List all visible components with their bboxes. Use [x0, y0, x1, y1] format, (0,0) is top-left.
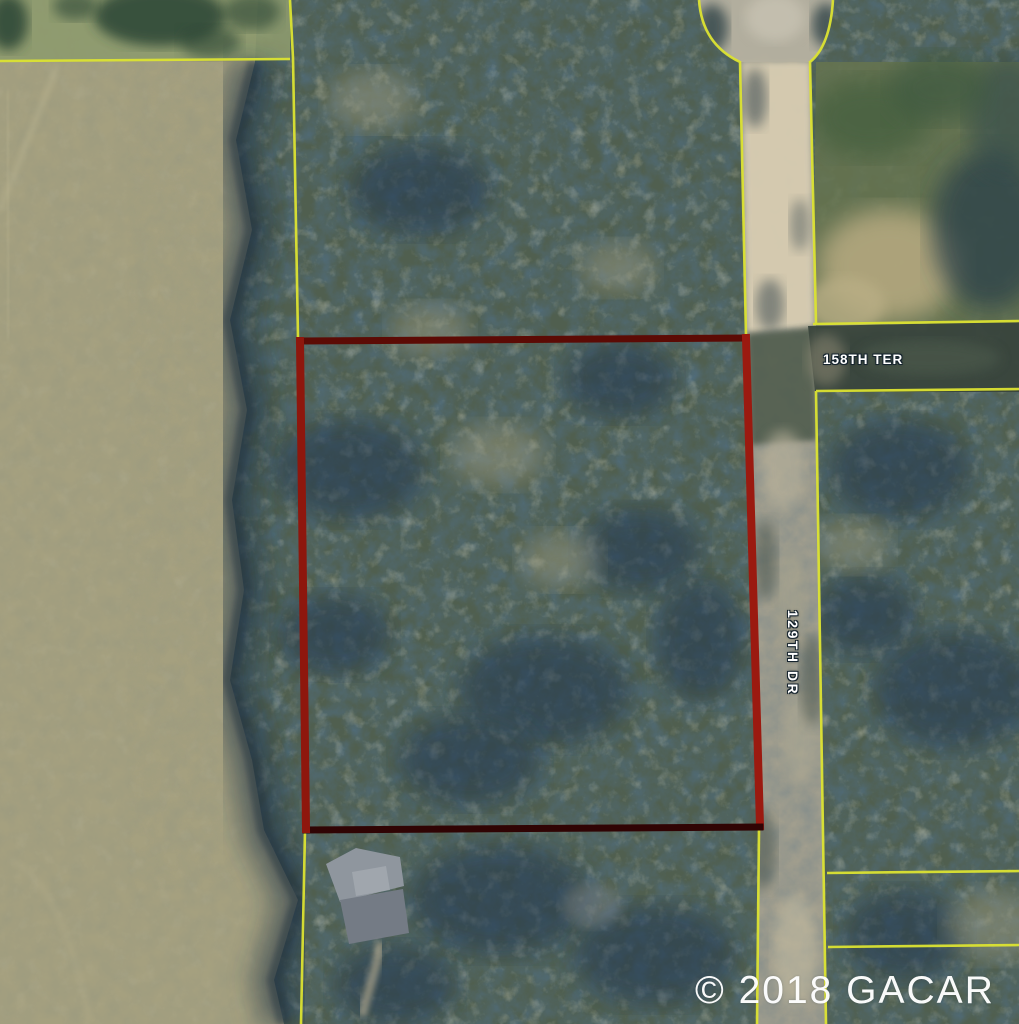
outbuilding	[562, 883, 622, 927]
clearing-northeast	[805, 54, 1019, 333]
copyright-watermark: © 2018 GACAR	[695, 969, 995, 1013]
map-canvas: 158TH TER 129TH DR © 2018 GACAR	[0, 0, 1019, 1024]
parcel-edge-south	[306, 827, 760, 830]
parcel-edge-north	[301, 338, 746, 341]
street-label-158th-ter: 158TH TER	[823, 352, 903, 367]
aerial-imagery	[0, 0, 1019, 1024]
street-label-129th-dr: 129TH DR	[785, 610, 801, 696]
